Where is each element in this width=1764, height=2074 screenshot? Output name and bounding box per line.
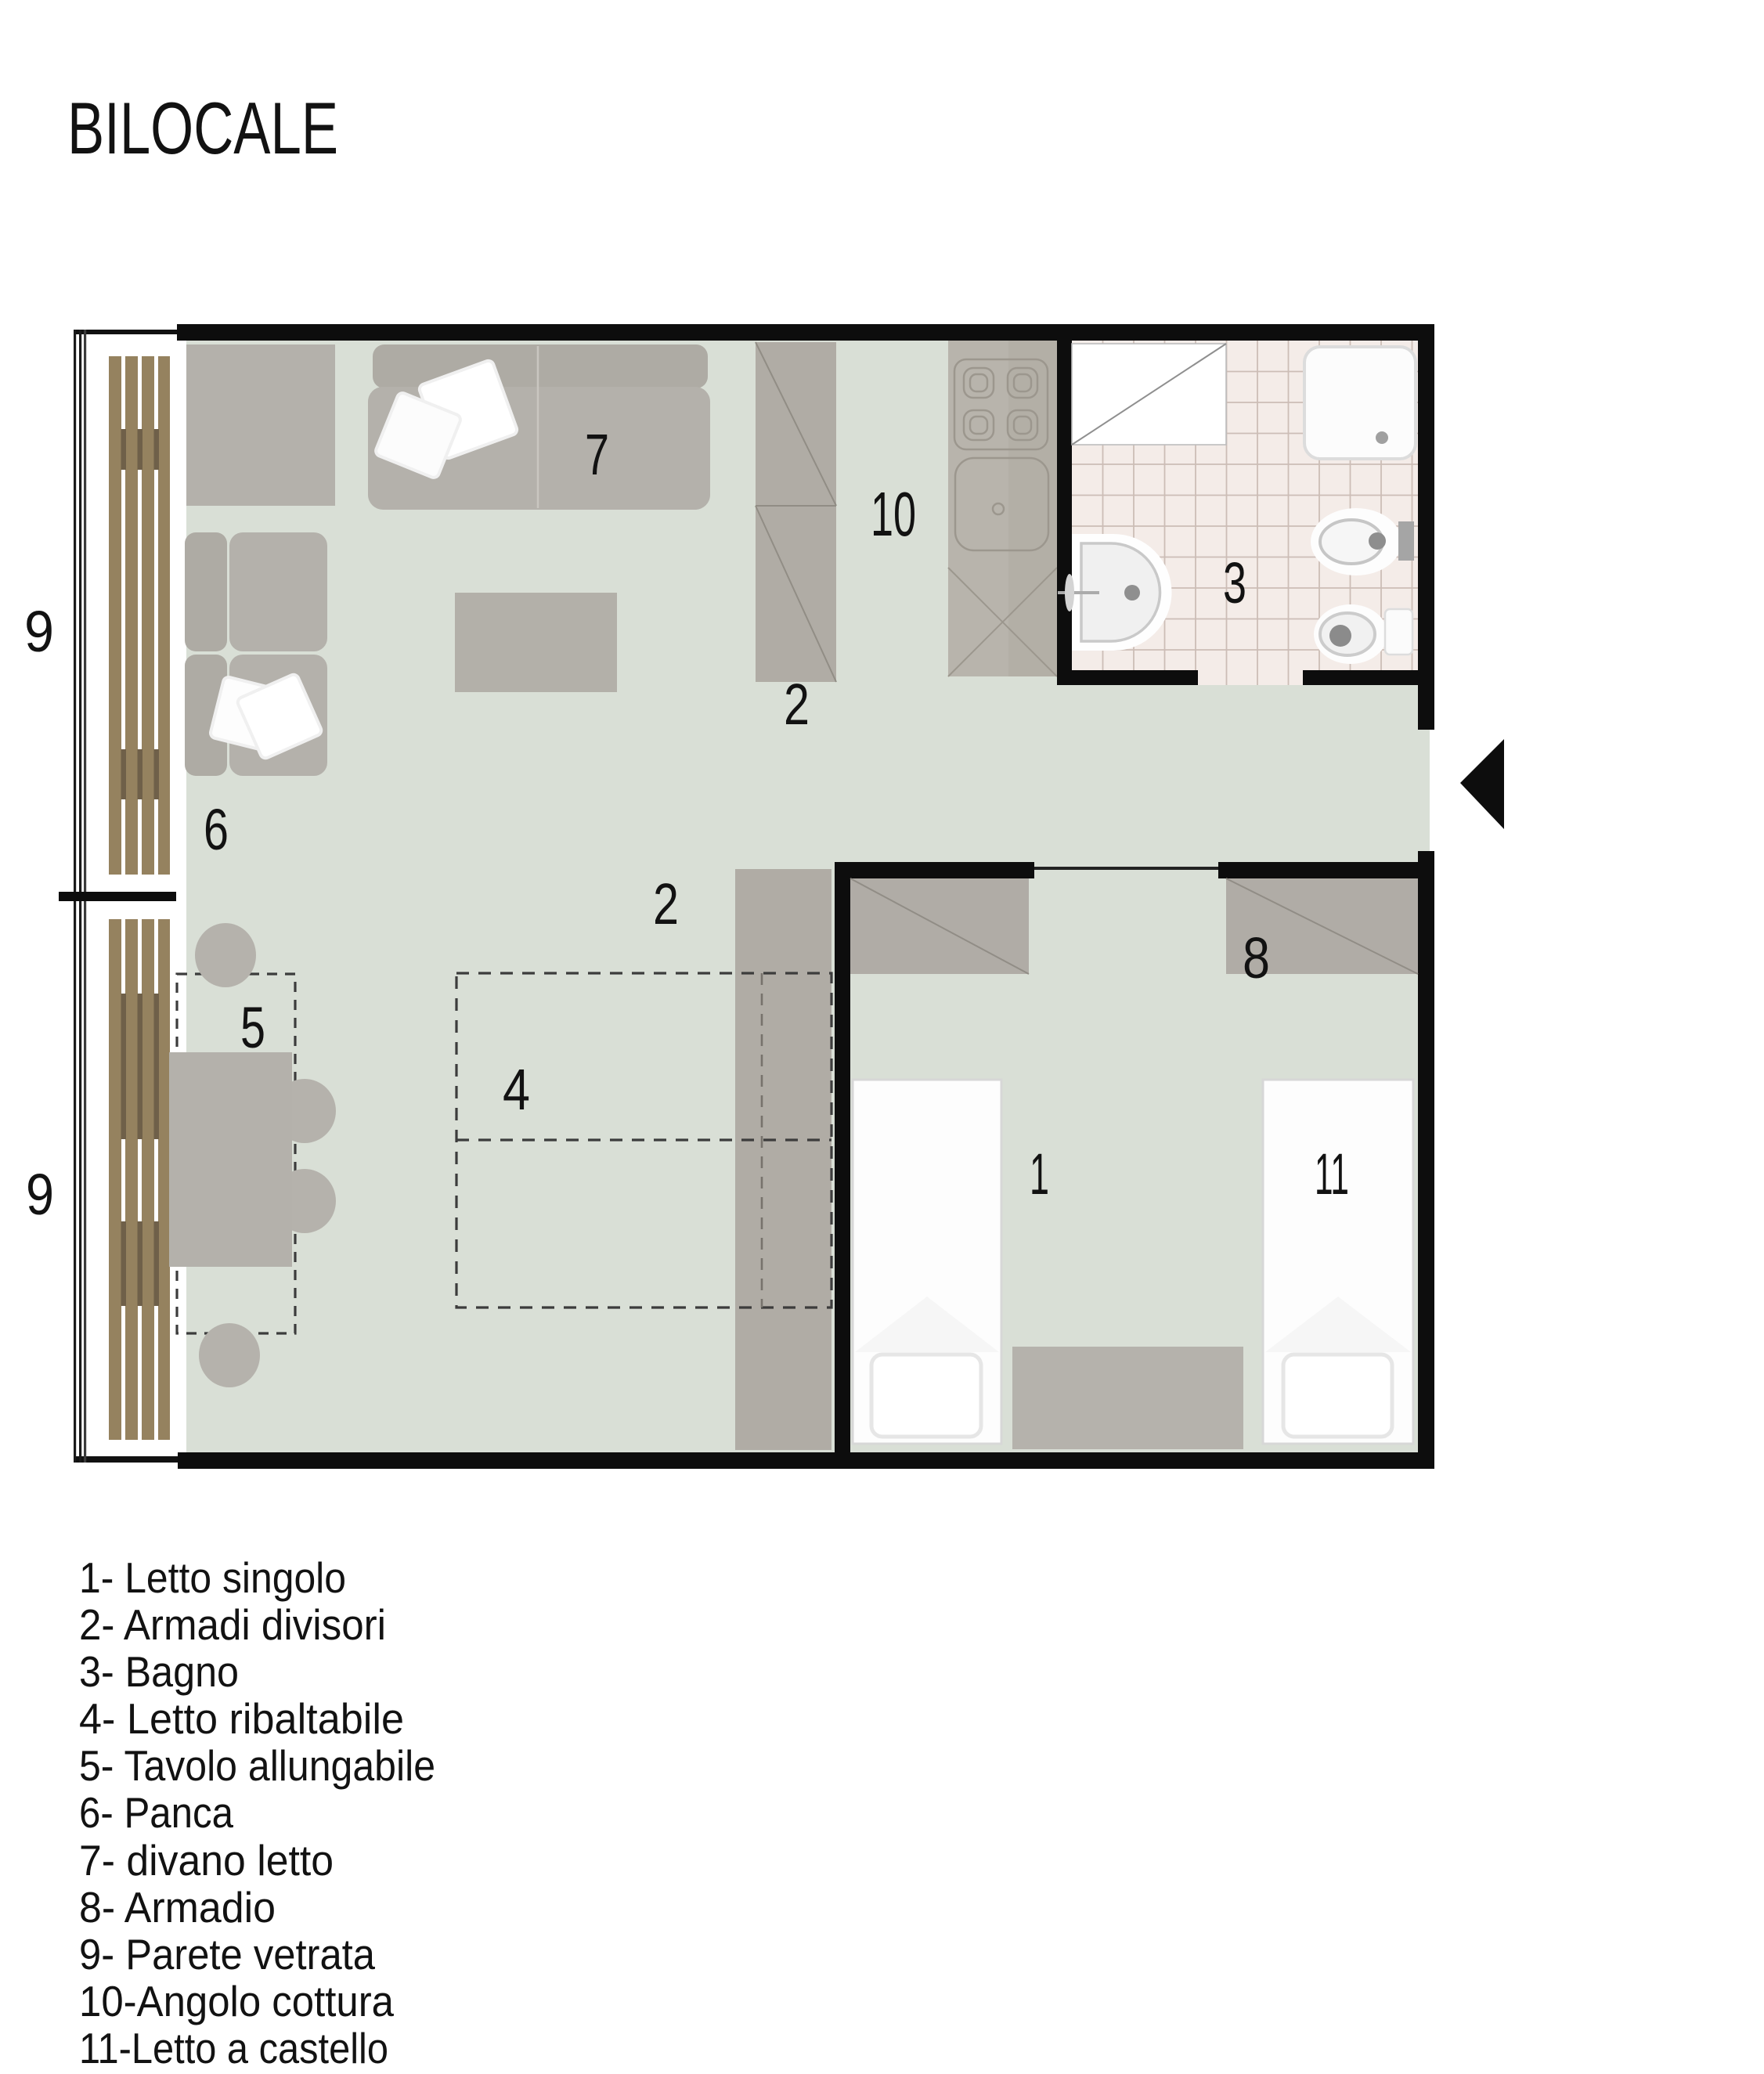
svg-text:3- Bagno: 3- Bagno	[79, 1647, 239, 1696]
svg-text:2: 2	[784, 672, 810, 737]
svg-text:1- Letto singolo: 1- Letto singolo	[79, 1553, 346, 1602]
svg-text:BILOCALE: BILOCALE	[67, 87, 338, 169]
svg-text:6- Panca: 6- Panca	[79, 1788, 233, 1837]
svg-text:9: 9	[26, 1162, 54, 1227]
svg-text:8: 8	[1243, 925, 1270, 990]
svg-text:6: 6	[204, 797, 229, 862]
svg-text:2: 2	[653, 871, 679, 936]
svg-text:8- Armadio: 8- Armadio	[79, 1883, 276, 1932]
svg-text:3: 3	[1223, 550, 1246, 615]
svg-text:4- Letto ribaltabile: 4- Letto ribaltabile	[79, 1694, 404, 1743]
svg-text:7- divano letto: 7- divano letto	[79, 1836, 334, 1885]
svg-text:9- Parete vetrata: 9- Parete vetrata	[79, 1930, 375, 1978]
svg-text:5: 5	[240, 995, 265, 1060]
svg-text:7: 7	[585, 422, 609, 487]
svg-text:2- Armadi divisori: 2- Armadi divisori	[79, 1600, 386, 1649]
svg-text:9: 9	[24, 599, 54, 664]
svg-text:4: 4	[503, 1057, 530, 1122]
svg-text:10-Angolo cottura: 10-Angolo cottura	[79, 1977, 394, 2025]
svg-text:11: 11	[1315, 1142, 1349, 1207]
svg-text:5- Tavolo allungabile: 5- Tavolo allungabile	[79, 1741, 435, 1790]
svg-text:1: 1	[1030, 1142, 1049, 1207]
svg-text:11-Letto a castello: 11-Letto a castello	[79, 2024, 388, 2072]
svg-text:10: 10	[871, 479, 916, 549]
